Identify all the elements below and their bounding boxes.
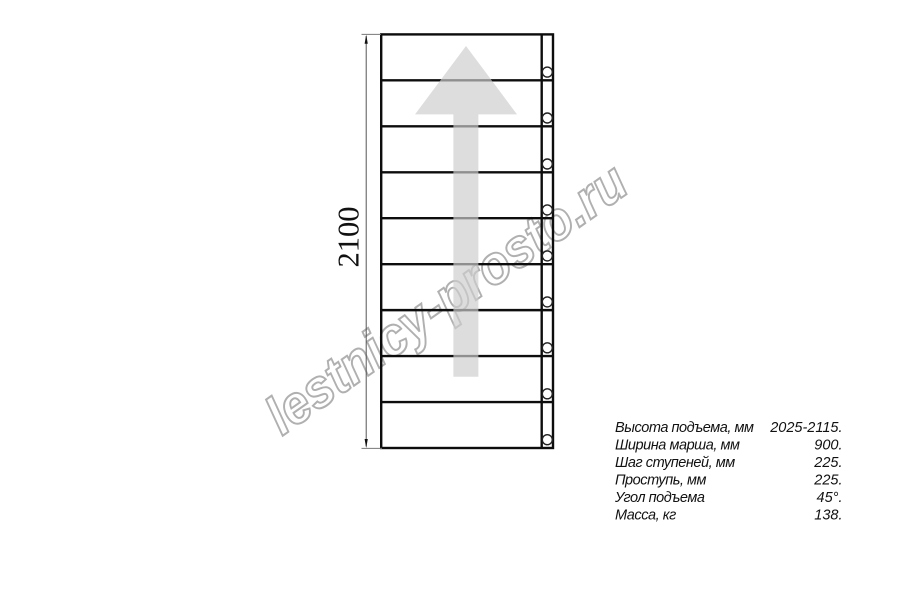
svg-text:900.: 900. <box>814 438 842 454</box>
svg-text:Угол подъема: Угол подъема <box>614 490 705 506</box>
svg-text:45°.: 45°. <box>817 490 843 506</box>
svg-text:225.: 225. <box>813 473 842 489</box>
svg-text:2100: 2100 <box>332 207 366 268</box>
svg-text:Масса, кг: Масса, кг <box>615 508 676 524</box>
svg-text:Шаг ступеней, мм: Шаг ступеней, мм <box>615 455 735 471</box>
svg-text:Проступь, мм: Проступь, мм <box>615 473 707 489</box>
svg-text:225.: 225. <box>813 455 842 471</box>
svg-text:Высота подъема, мм: Высота подъема, мм <box>615 420 754 436</box>
svg-text:2025-2115.: 2025-2115. <box>769 420 842 436</box>
svg-text:138.: 138. <box>814 508 842 524</box>
svg-text:Ширина марша, мм: Ширина марша, мм <box>615 438 740 454</box>
